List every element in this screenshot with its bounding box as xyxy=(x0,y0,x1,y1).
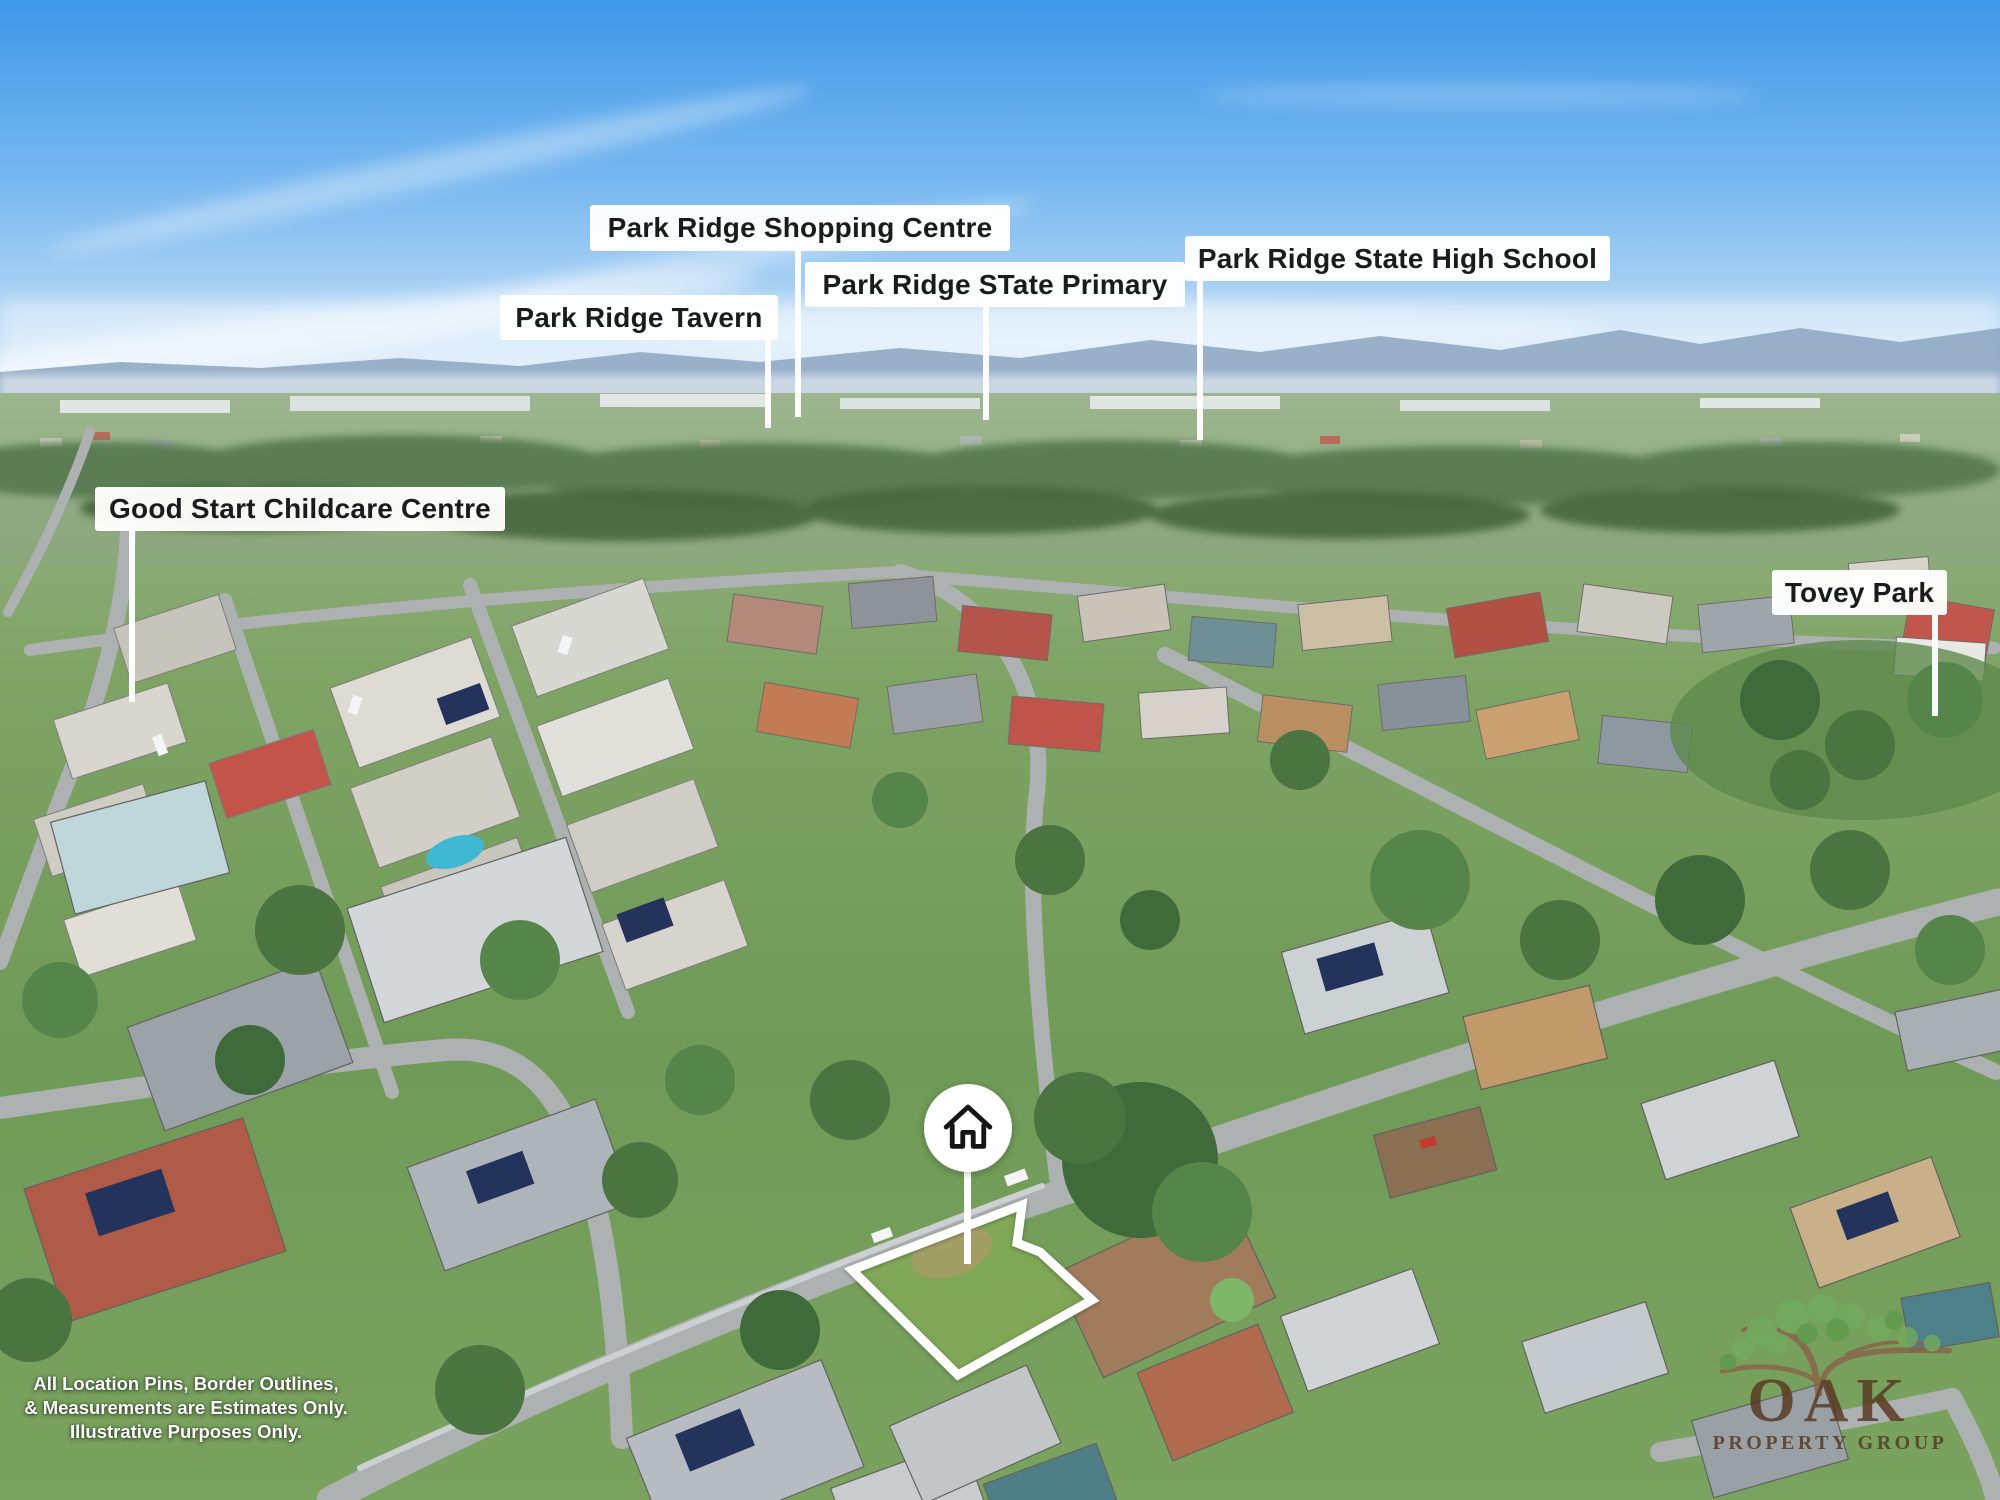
label-stem-high-school xyxy=(1197,279,1203,440)
label-stem-childcare xyxy=(129,529,135,702)
location-label-childcare: Good Start Childcare Centre xyxy=(95,487,505,531)
property-pin xyxy=(924,1084,1012,1172)
location-label-text: Park Ridge Tavern xyxy=(515,302,762,334)
aerial-property-photo: Park Ridge Shopping Centre Park Ridge ST… xyxy=(0,0,2000,1500)
pin-stem xyxy=(964,1166,971,1264)
location-label-state-primary: Park Ridge STate Primary xyxy=(805,262,1185,307)
location-label-text: Park Ridge State High School xyxy=(1198,243,1597,275)
disclaimer-line: & Measurements are Estimates Only. xyxy=(14,1396,358,1420)
location-label-tavern: Park Ridge Tavern xyxy=(500,295,778,340)
logo-wordmark: OAK xyxy=(1698,1370,1962,1432)
location-label-high-school: Park Ridge State High School xyxy=(1185,236,1610,281)
label-stem-state-primary xyxy=(983,305,989,420)
location-label-text: Park Ridge STate Primary xyxy=(822,269,1167,301)
label-stem-tavern xyxy=(765,338,771,428)
house-icon xyxy=(940,1100,996,1156)
location-label-text: Park Ridge Shopping Centre xyxy=(608,212,993,244)
label-stem-shopping-centre xyxy=(795,249,801,417)
location-label-text: Tovey Park xyxy=(1785,577,1934,609)
logo-subtitle: PROPERTY GROUP xyxy=(1698,1432,1962,1455)
watermark-logo: OAK PROPERTY GROUP xyxy=(1698,1292,1962,1462)
location-label-text: Good Start Childcare Centre xyxy=(109,493,491,525)
disclaimer-text: All Location Pins, Border Outlines, & Me… xyxy=(14,1372,358,1444)
location-label-shopping-centre: Park Ridge Shopping Centre xyxy=(590,205,1010,251)
disclaimer-line: Illustrative Purposes Only. xyxy=(14,1420,358,1444)
disclaimer-line: All Location Pins, Border Outlines, xyxy=(14,1372,358,1396)
location-label-tovey-park: Tovey Park xyxy=(1772,570,1947,615)
label-stem-tovey-park xyxy=(1932,613,1938,716)
